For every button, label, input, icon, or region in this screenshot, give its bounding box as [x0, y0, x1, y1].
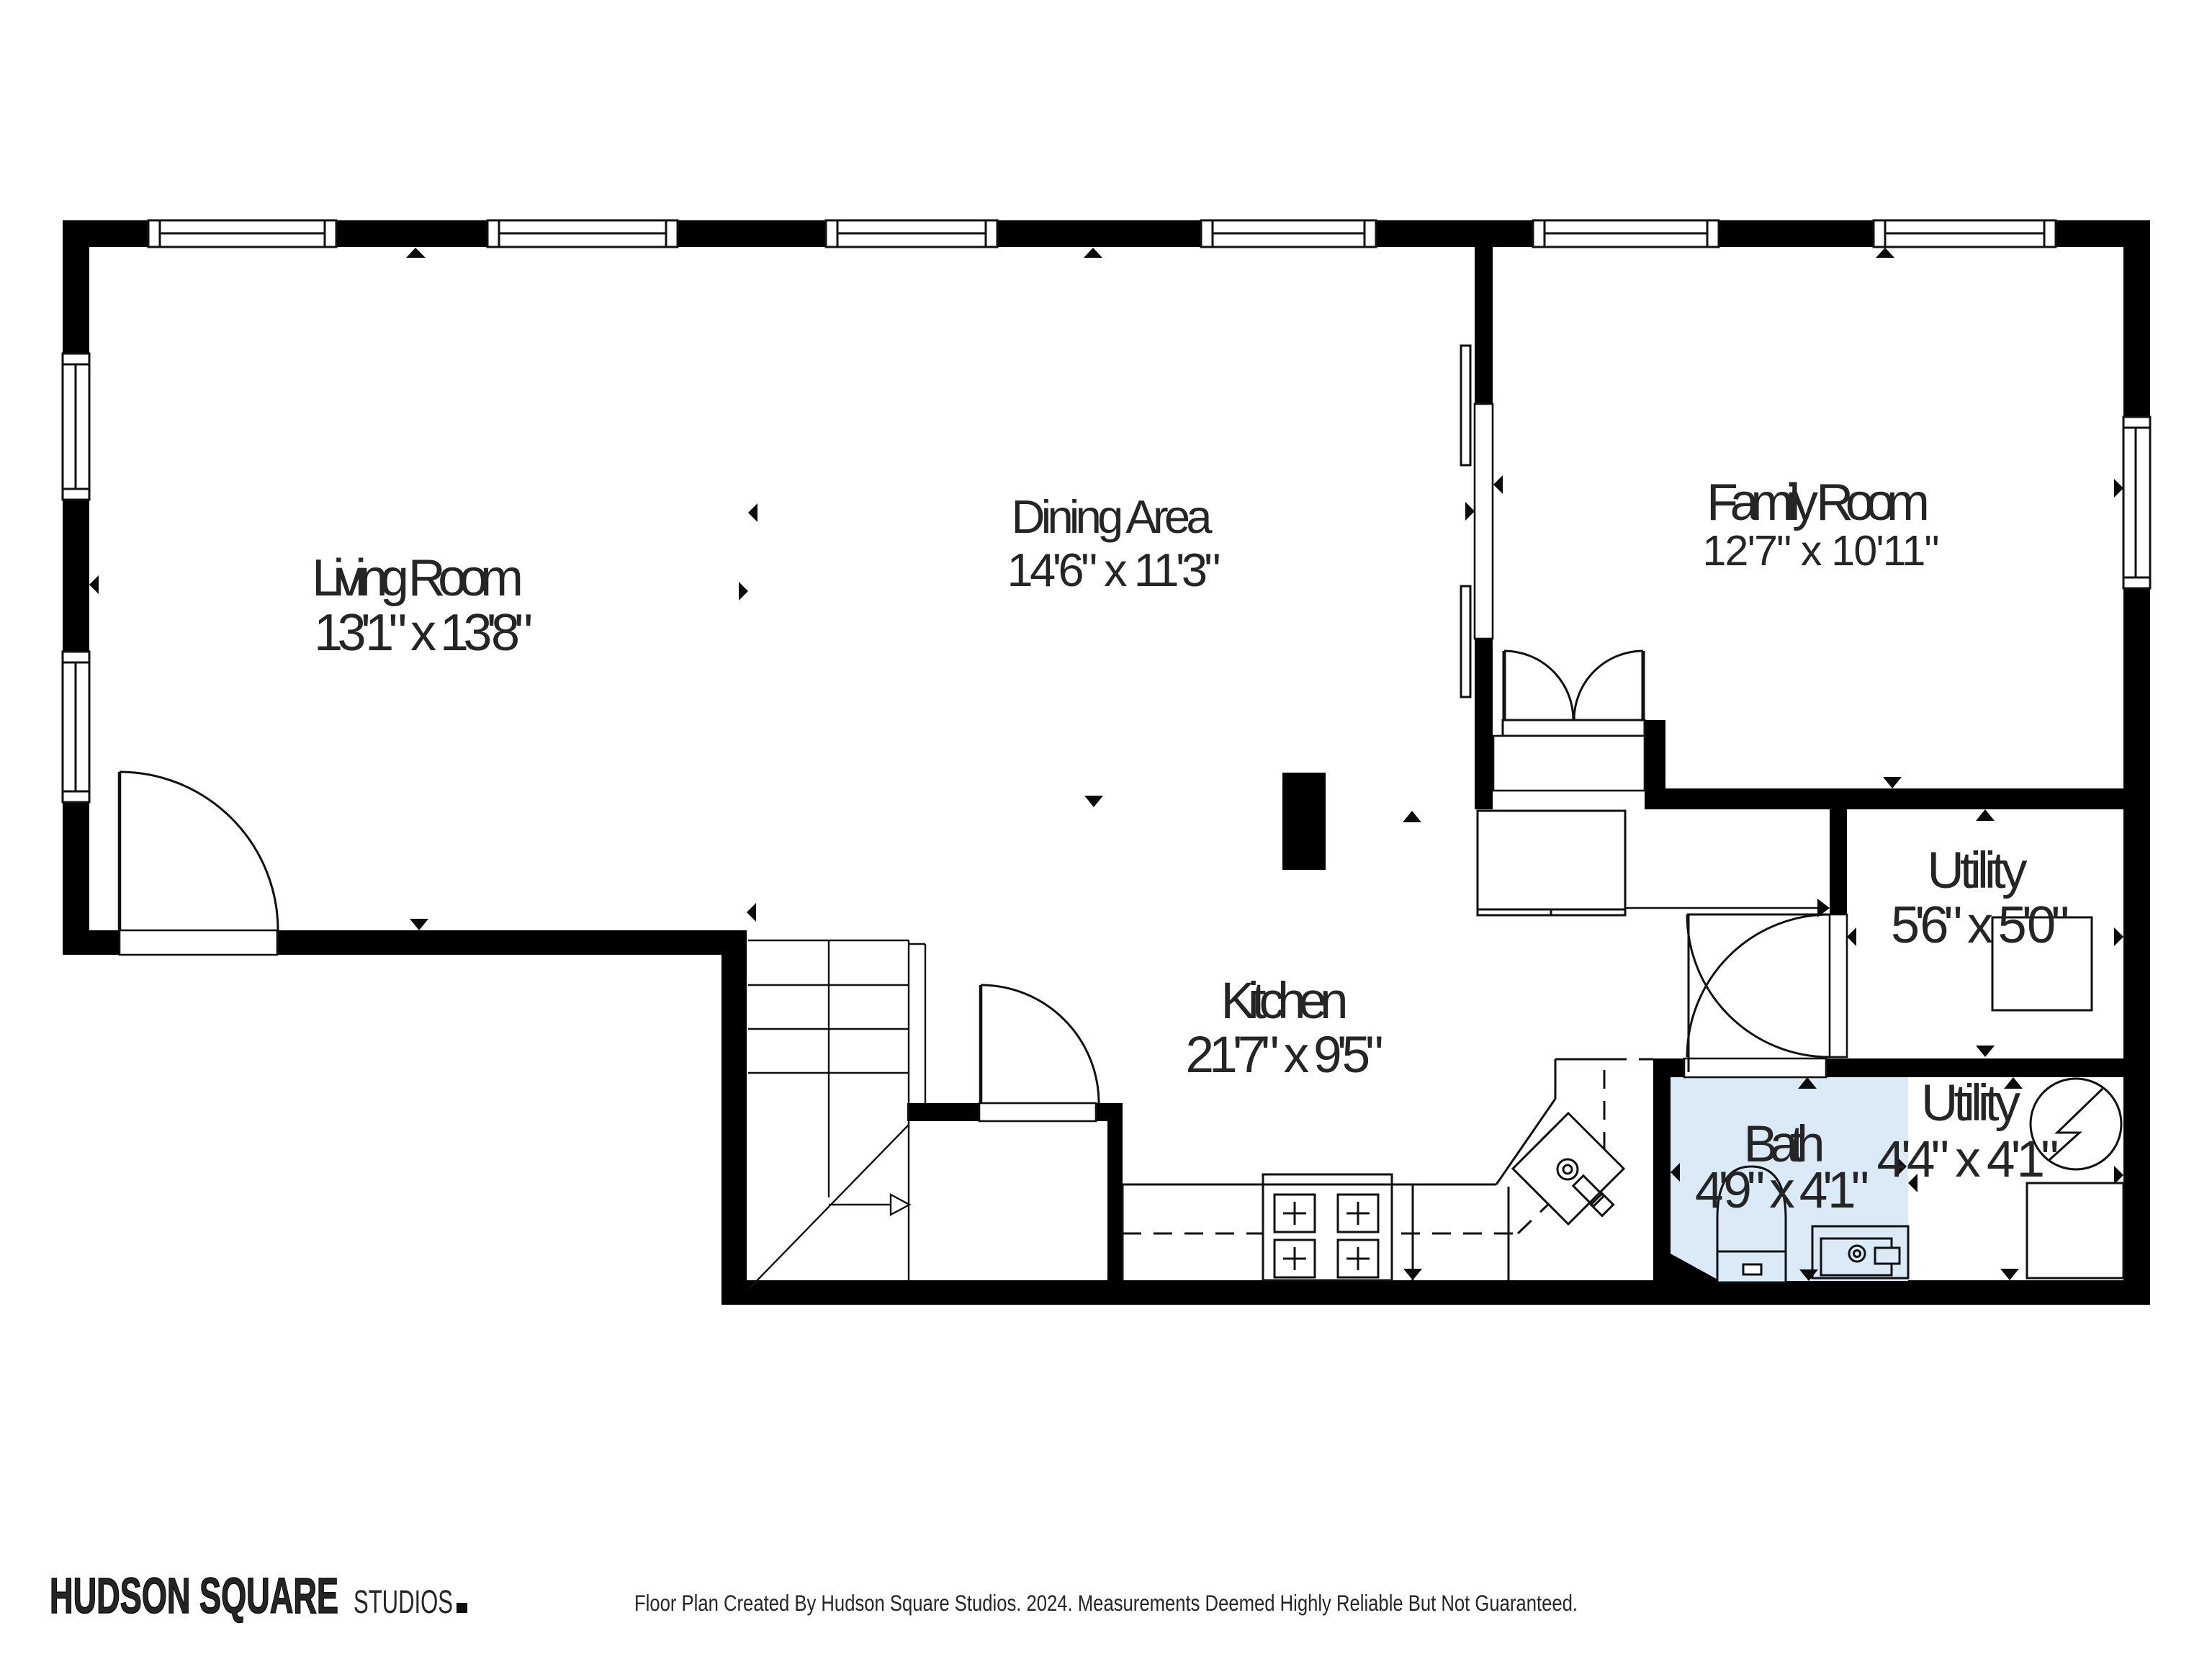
svg-text:4'9" x 4'1": 4'9" x 4'1" — [1695, 1162, 1869, 1219]
svg-text:4'4" x 4'1": 4'4" x 4'1" — [1877, 1131, 2059, 1188]
svg-text:Floor Plan Created By Hudson S: Floor Plan Created By Hudson Square Stud… — [634, 1590, 1578, 1616]
svg-text:Living Room: Living Room — [312, 549, 523, 607]
svg-text:21'7" x 9'5": 21'7" x 9'5" — [1186, 1027, 1384, 1084]
svg-text:STUDIOS: STUDIOS — [354, 1583, 453, 1620]
svg-text:Dining Area: Dining Area — [1012, 490, 1213, 543]
svg-text:13'1" x 13'8": 13'1" x 13'8" — [314, 604, 533, 662]
svg-text:Family Room: Family Room — [1707, 474, 1930, 531]
svg-text:12'7" x 10'11": 12'7" x 10'11" — [1703, 527, 1940, 575]
svg-text:Utility: Utility — [1928, 842, 2028, 899]
svg-text:Kitchen: Kitchen — [1221, 973, 1349, 1030]
svg-text:Utility: Utility — [1921, 1075, 2021, 1132]
svg-text:5'6" x 5'0": 5'6" x 5'0" — [1891, 896, 2069, 954]
svg-text:HUDSON SQUARE: HUDSON SQUARE — [50, 1568, 338, 1624]
svg-text:14'6" x 11'3": 14'6" x 11'3" — [1007, 544, 1221, 596]
